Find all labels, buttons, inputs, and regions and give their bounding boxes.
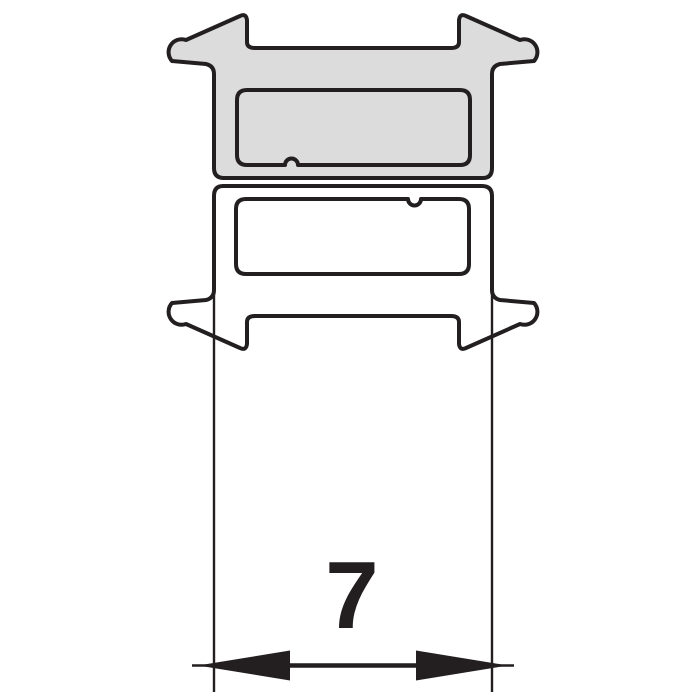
diagram-canvas: 7 [0, 0, 700, 700]
lower-profile-body [169, 186, 538, 349]
profile-diagram: 7 [0, 0, 700, 700]
arrowhead-right-icon [416, 651, 508, 681]
upper-profile [169, 15, 538, 178]
dimension-label: 7 [325, 542, 378, 649]
arrowhead-left-icon [198, 651, 290, 681]
upper-profile-body [169, 15, 538, 178]
lower-profile [169, 186, 538, 349]
